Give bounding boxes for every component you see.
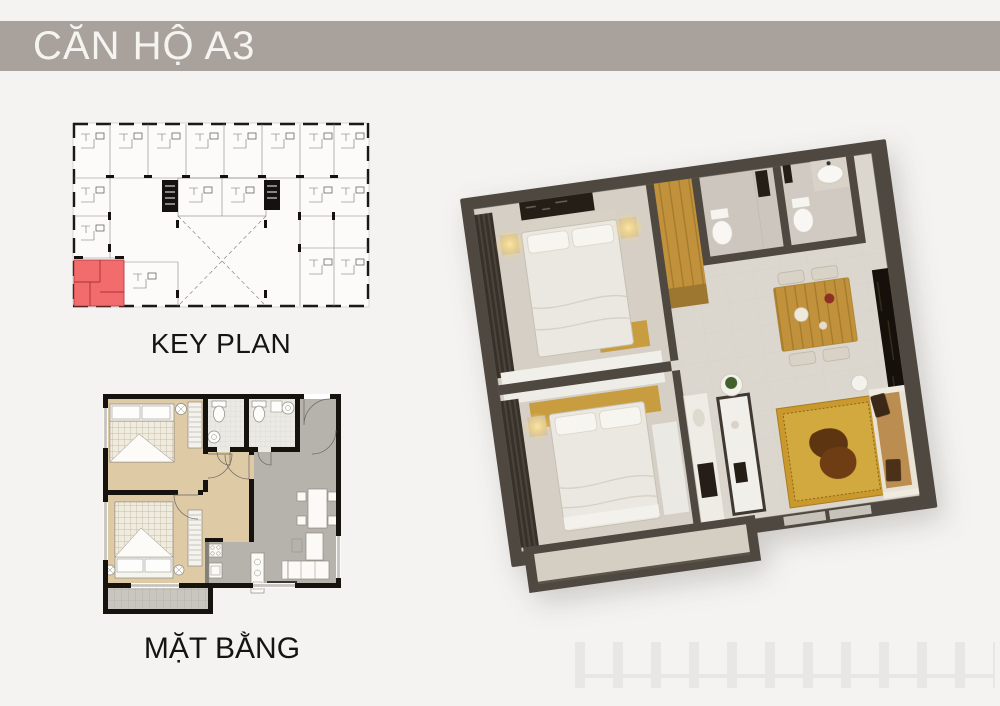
dining-table: [773, 278, 857, 352]
key-plan-drawing: [70, 120, 372, 312]
sofa-cushion: [886, 459, 902, 482]
key-plan-highlight-unit: [74, 260, 124, 306]
floor-plan-label: MẶT BẰNG: [101, 632, 343, 666]
key-plan-label: KEY PLAN: [70, 328, 372, 360]
apartment-title: CĂN HỘ A3: [33, 24, 255, 68]
watermark: [575, 642, 995, 688]
floor-plan-2d: [101, 392, 343, 616]
balcony-floor: [108, 588, 208, 609]
render-3d: [460, 139, 942, 600]
title-banner: CĂN HỘ A3: [0, 21, 1000, 71]
